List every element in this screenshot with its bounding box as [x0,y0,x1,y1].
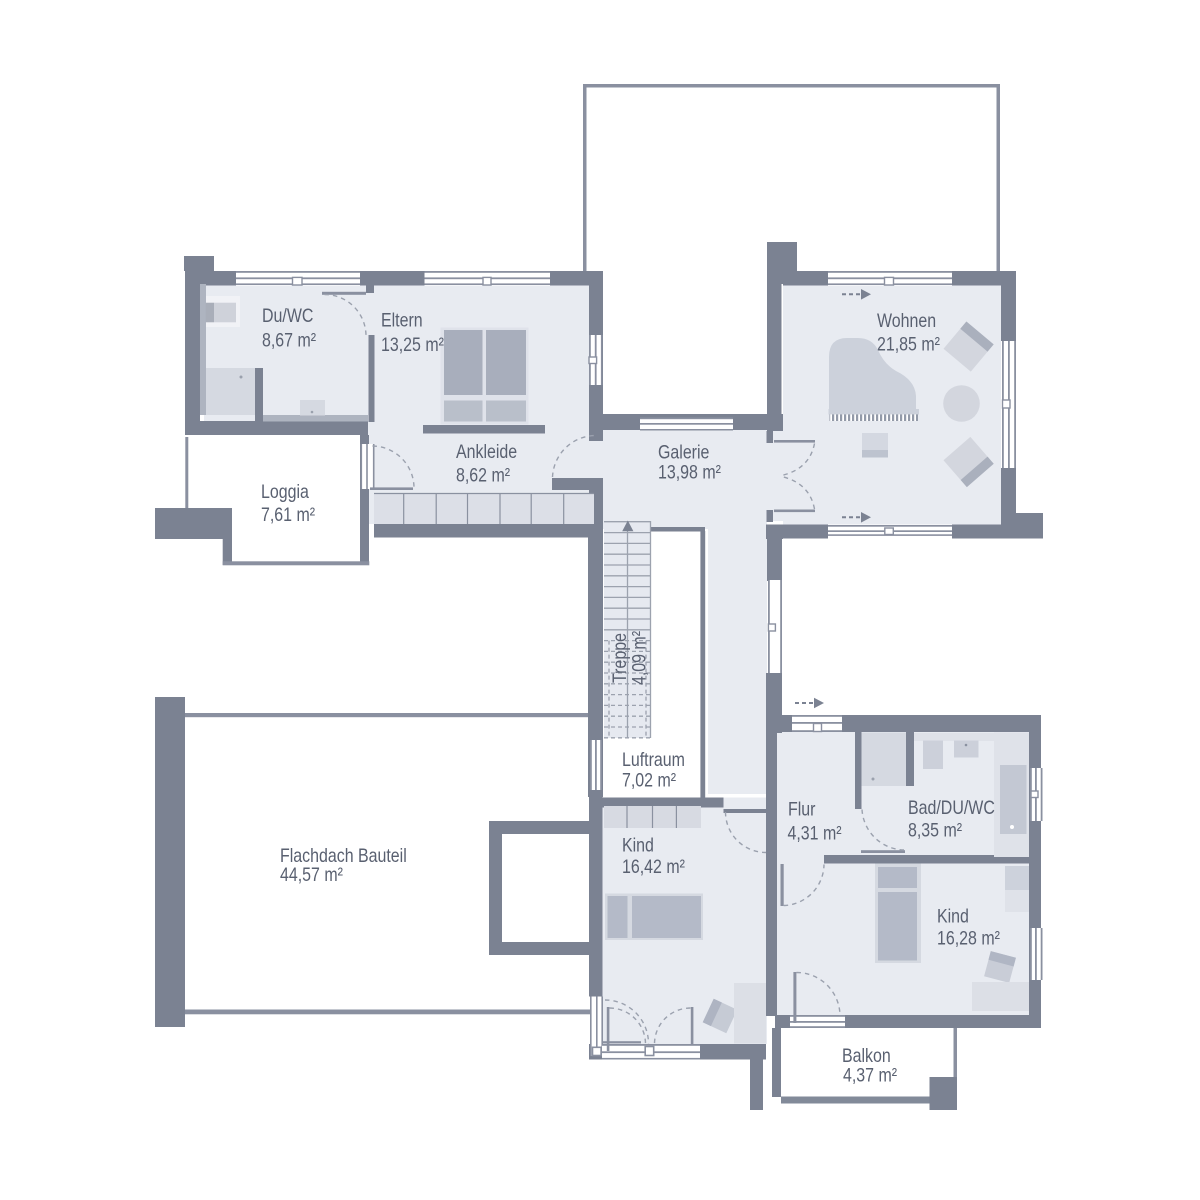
svg-text:13,98 m²: 13,98 m² [658,461,721,483]
svg-text:7,61 m²: 7,61 m² [261,504,315,526]
svg-text:4,31 m²: 4,31 m² [788,822,842,844]
svg-text:4,37 m²: 4,37 m² [843,1064,897,1086]
svg-text:8,62 m²: 8,62 m² [456,464,510,486]
svg-text:Bad/DU/WC: Bad/DU/WC [908,797,995,819]
svg-text:Flur: Flur [788,798,816,820]
svg-text:16,28 m²: 16,28 m² [937,927,1000,949]
svg-text:Eltern: Eltern [381,309,423,331]
svg-text:Kind: Kind [937,905,969,927]
svg-text:Treppe: Treppe [609,633,631,683]
svg-text:4,09 m²: 4,09 m² [628,631,650,685]
svg-text:Kind: Kind [622,834,654,856]
svg-text:Balkon: Balkon [842,1045,891,1067]
svg-text:8,35 m²: 8,35 m² [908,819,962,841]
svg-text:7,02 m²: 7,02 m² [622,769,676,791]
svg-text:Ankleide: Ankleide [456,441,517,463]
svg-text:Du/WC: Du/WC [262,305,313,327]
svg-text:Loggia: Loggia [261,481,309,503]
svg-text:Luftraum: Luftraum [622,749,685,771]
svg-text:16,42 m²: 16,42 m² [622,856,685,878]
svg-text:21,85 m²: 21,85 m² [877,333,940,355]
svg-text:13,25 m²: 13,25 m² [381,334,444,356]
svg-text:8,67 m²: 8,67 m² [262,329,316,351]
svg-text:Galerie: Galerie [658,441,709,463]
svg-text:Wohnen: Wohnen [877,310,936,332]
svg-text:44,57 m²: 44,57 m² [280,864,343,886]
